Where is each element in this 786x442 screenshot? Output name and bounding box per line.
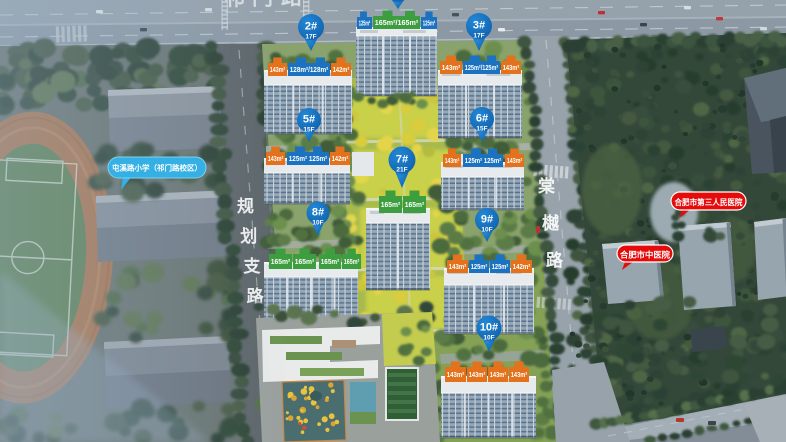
svg-text:143m²: 143m² <box>469 372 486 379</box>
svg-text:142m²: 142m² <box>333 67 350 74</box>
svg-text:143m²: 143m² <box>503 65 520 72</box>
svg-text:143m²: 143m² <box>270 67 286 74</box>
svg-text:165m²/165m²: 165m²/165m² <box>375 20 419 27</box>
svg-text:合肥市第三人民医院: 合肥市第三人民医院 <box>674 197 744 207</box>
svg-text:125m²: 125m² <box>423 21 436 28</box>
svg-text:142m²: 142m² <box>332 156 349 163</box>
svg-text:125m²: 125m² <box>492 264 509 271</box>
svg-text:樾: 樾 <box>542 214 560 233</box>
svg-text:2#: 2# <box>305 21 317 33</box>
svg-text:10F: 10F <box>312 220 323 227</box>
svg-text:128m²/128m²: 128m²/128m² <box>290 67 329 74</box>
svg-text:9#: 9# <box>481 214 493 226</box>
svg-text:165m²: 165m² <box>295 259 315 266</box>
svg-text:143m²: 143m² <box>490 372 507 379</box>
svg-text:143m²: 143m² <box>268 156 284 163</box>
svg-text:10#: 10# <box>480 322 498 334</box>
svg-text:143m²: 143m² <box>507 158 523 165</box>
svg-text:屯溪路小学（祁门路校区）: 屯溪路小学（祁门路校区） <box>112 163 202 173</box>
svg-text:路: 路 <box>546 250 564 270</box>
svg-text:143m²: 143m² <box>442 65 461 72</box>
svg-text:15F: 15F <box>303 127 314 134</box>
svg-text:合肥市中医院: 合肥市中医院 <box>619 250 671 260</box>
svg-text:165m²: 165m² <box>381 202 401 209</box>
svg-text:21F: 21F <box>396 167 407 174</box>
svg-text:143m²: 143m² <box>511 372 528 379</box>
svg-text:125m² 125m²: 125m² 125m² <box>465 158 502 165</box>
svg-text:165m²: 165m² <box>271 259 291 266</box>
svg-text:125m²: 125m² <box>359 21 371 28</box>
svg-text:3#: 3# <box>473 20 485 32</box>
svg-text:125m² 125m²: 125m² 125m² <box>289 156 328 163</box>
svg-text:棠: 棠 <box>537 176 556 196</box>
svg-text:17F: 17F <box>305 34 316 41</box>
svg-text:15F: 15F <box>476 126 487 133</box>
svg-text:125m²: 125m² <box>471 264 488 271</box>
svg-text:8#: 8# <box>312 207 324 219</box>
svg-text:7#: 7# <box>396 154 408 166</box>
svg-text:143m²: 143m² <box>447 372 465 379</box>
svg-text:6#: 6# <box>476 113 488 125</box>
svg-text:165m²: 165m² <box>344 259 360 266</box>
svg-text:10F: 10F <box>481 227 492 234</box>
svg-text:165m²: 165m² <box>405 202 425 209</box>
svg-text:165m²: 165m² <box>321 259 340 266</box>
svg-text:10F: 10F <box>483 335 494 342</box>
svg-text:143m²: 143m² <box>445 158 460 165</box>
svg-text:125m²/125m²: 125m²/125m² <box>465 65 499 72</box>
svg-text:5#: 5# <box>303 114 315 126</box>
svg-text:143m²: 143m² <box>449 264 467 271</box>
svg-text:17F: 17F <box>473 33 484 40</box>
svg-text:142m²: 142m² <box>513 264 531 271</box>
